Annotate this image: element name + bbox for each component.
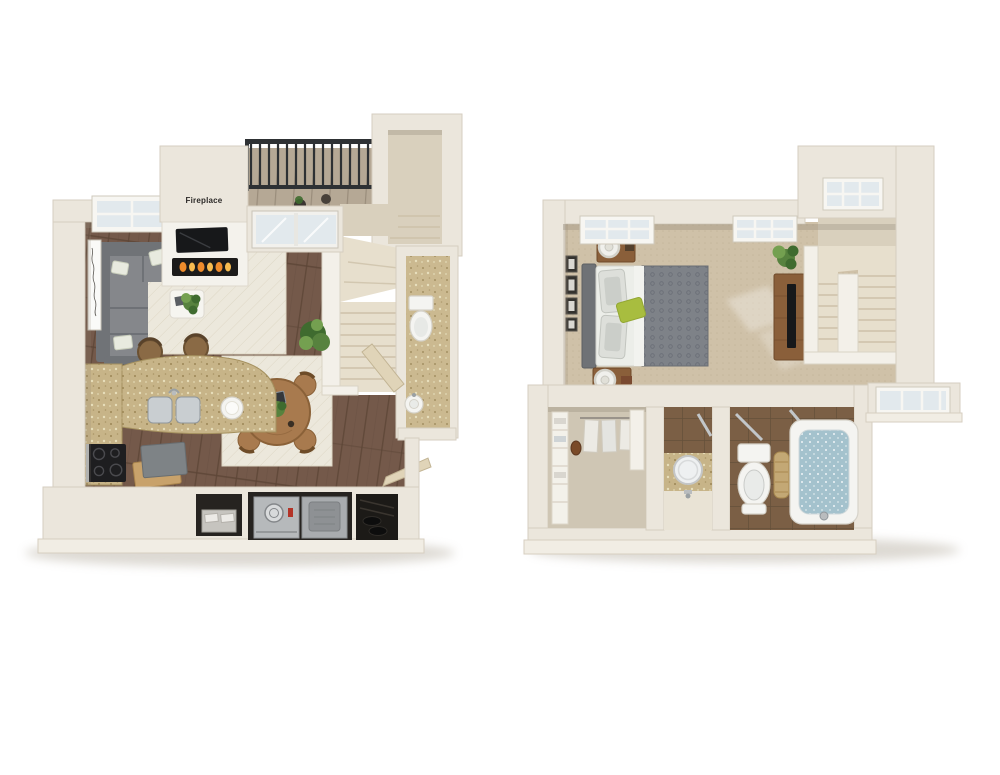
hanging-clothes xyxy=(583,420,634,453)
washer xyxy=(254,497,299,538)
vase xyxy=(571,441,581,455)
stair-hall-window xyxy=(823,178,883,210)
stair-west-wall xyxy=(804,246,818,364)
bottom-wall-closets xyxy=(38,487,424,553)
tv xyxy=(787,284,796,348)
bathroom xyxy=(730,407,858,530)
bedroom-window xyxy=(580,216,654,244)
half-bathroom xyxy=(396,246,458,438)
storage-box-gray xyxy=(141,442,188,478)
planter-pot xyxy=(321,194,331,204)
throw-pillow xyxy=(111,261,129,276)
fireplace: Fireplace xyxy=(160,146,248,286)
bathtub xyxy=(790,420,858,524)
closet-shelving xyxy=(552,412,568,524)
duvet xyxy=(642,266,708,366)
cooktop xyxy=(86,444,126,482)
vanity-area xyxy=(664,407,712,530)
bedroom-window xyxy=(733,216,797,242)
serving-plate xyxy=(221,397,243,419)
second-floor-staircase xyxy=(804,246,898,364)
laundry-closet xyxy=(248,492,352,540)
headboard xyxy=(582,264,596,368)
throw-pillow xyxy=(113,335,132,350)
tub-faucet xyxy=(820,512,828,520)
shoe-closet xyxy=(356,494,398,540)
sliding-glass-door xyxy=(247,206,343,252)
first-floor-plan: Fireplace xyxy=(25,114,462,567)
fireplace-label: Fireplace xyxy=(186,196,223,205)
fireplace-insert xyxy=(172,258,238,276)
floor-plans-svg: Fireplace xyxy=(0,0,1000,775)
corner-window xyxy=(866,383,962,422)
floor-plan-image: Fireplace xyxy=(0,0,1000,775)
closet-partition xyxy=(630,410,644,470)
dryer xyxy=(302,497,347,538)
coffee-table xyxy=(170,290,204,318)
walk-in-closet xyxy=(548,407,646,528)
stair-south-wall xyxy=(804,352,898,364)
drawer-cabinet-niche xyxy=(196,494,242,536)
second-floor-plan xyxy=(524,146,962,563)
bed xyxy=(582,264,708,368)
laundry-hamper xyxy=(774,452,789,498)
kitchen-peninsula xyxy=(122,356,276,434)
stair-newel-wall xyxy=(838,274,858,352)
stair-banister xyxy=(322,236,340,394)
tv xyxy=(176,227,229,253)
toilet xyxy=(409,296,433,341)
